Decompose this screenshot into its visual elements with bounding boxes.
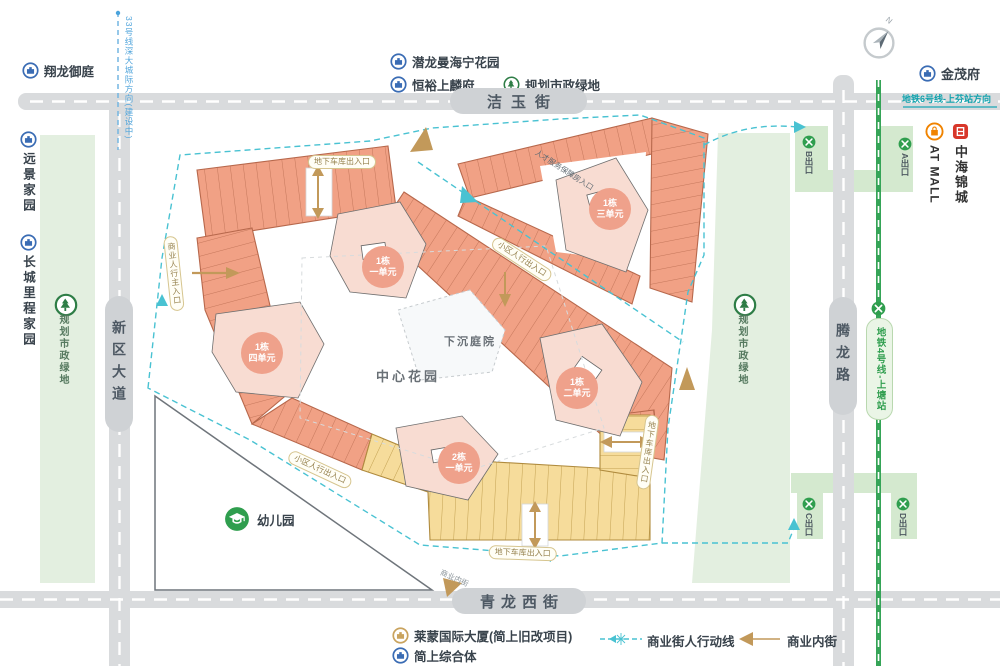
unit-name: 1栋 — [255, 342, 269, 353]
building-icon — [390, 76, 407, 93]
unit-name: 2栋 — [452, 452, 466, 463]
neighbor-changcheng: 长城里程家园 — [19, 234, 38, 348]
legend-inner-street-sample — [739, 632, 780, 646]
unit-badge-1-1: 1栋 一单元 — [362, 246, 404, 288]
street-xinqu-label: 新区大道 — [109, 320, 129, 408]
unit-number: 一单元 — [445, 463, 472, 474]
building-icon — [20, 131, 37, 148]
exit-d-label: D出口 — [897, 513, 909, 536]
unit-number: 一单元 — [369, 267, 396, 278]
building-icon — [392, 647, 409, 664]
exit-a-label: A出口 — [899, 153, 911, 176]
metro-exit-icon — [802, 497, 816, 511]
unit-badge-2-1: 2栋 一单元 — [438, 442, 480, 484]
graduation-cap-icon — [224, 506, 250, 532]
green-right-label: 规划市政绿地 — [733, 293, 750, 386]
metro-exit-c: C出口 — [802, 497, 816, 536]
metro-exit-a: A出口 — [898, 137, 912, 176]
line4-station-label: 地铁4号线-上塘站 — [873, 327, 887, 411]
metro-exit-b: B出口 — [802, 135, 816, 174]
legend-jianshang: 简上综合体 — [392, 646, 477, 665]
zhonghai-brand: 中海锦城 — [951, 122, 970, 205]
kindergarten-text: 幼儿园 — [257, 510, 295, 529]
kindergarten-label: 幼儿园 — [224, 506, 295, 532]
neighbor-changcheng-label: 长城里程家园 — [19, 255, 38, 348]
unit-name: 1栋 — [376, 256, 390, 267]
neighbor-jinmao: 金茂府 — [919, 64, 980, 83]
north-arrow-icon — [856, 20, 902, 66]
street-tenglong: 腾龙路 — [829, 297, 857, 415]
green-left-label: 规划市政绿地 — [54, 293, 71, 386]
zhonghai-logo-icon — [951, 122, 970, 141]
neighbor-qianlong-label: 潜龙曼海宁花园 — [412, 52, 500, 71]
legend-inner-street: 商业内街 — [787, 631, 837, 650]
street-qinglongxi-label: 青龙西街 — [480, 591, 564, 612]
exit-c-label: C出口 — [803, 513, 815, 536]
at-mall-label: AT MALL — [925, 122, 944, 204]
metro-line33-node — [116, 11, 120, 15]
unit-name: 1栋 — [570, 377, 584, 388]
entrance-garage-bottom: 地下车库出入口 — [489, 545, 557, 561]
metro-exit-d: D出口 — [896, 497, 910, 536]
entrance-garage-top: 地下车库出入口 — [308, 155, 376, 169]
legend-pedestrian-sample — [600, 633, 642, 645]
building-icon-gold — [392, 627, 409, 644]
building-icon — [390, 53, 407, 70]
tree-icon — [733, 293, 750, 310]
neighbor-jinmao-label: 金茂府 — [941, 64, 980, 83]
neighbor-yuanjing-label: 远景家园 — [19, 152, 38, 214]
metro-exit-icon — [898, 137, 912, 151]
shopping-bag-icon — [925, 122, 944, 141]
line6-direction-label: 地铁6号线-上芬站方向 — [902, 92, 991, 105]
line4-station-capsule: 地铁4号线-上塘站 — [866, 318, 893, 420]
legend-laimeng: 莱蒙国际大厦(简上旧改项目) — [392, 626, 572, 645]
building-icon — [22, 62, 39, 79]
green-right-text: 规划市政绿地 — [734, 314, 749, 386]
street-xinqu: 新区大道 — [105, 296, 133, 432]
central-garden-label: 中心花园 — [376, 366, 440, 385]
tree-icon — [54, 293, 71, 310]
legend-laimeng-label: 莱蒙国际大厦(简上旧改项目) — [414, 626, 572, 645]
building-icon — [919, 65, 936, 82]
neighbor-xianglong-label: 翔龙御庭 — [44, 61, 94, 80]
zhonghai-text: 中海锦城 — [951, 145, 970, 205]
unit-badge-1-3: 1栋 三单元 — [589, 188, 631, 230]
sunken-courtyard-label: 下沉庭院 — [444, 333, 496, 349]
exit-b-label: B出口 — [803, 151, 815, 174]
neighbor-qianlong: 潜龙曼海宁花园 — [390, 52, 500, 71]
legend-pedestrian-line: 商业街人行动线 — [647, 631, 735, 650]
metro-line4-icon — [871, 301, 886, 316]
metro-exit-icon — [896, 497, 910, 511]
unit-number: 四单元 — [248, 353, 275, 364]
unit-badge-1-4: 1栋 四单元 — [241, 332, 283, 374]
at-mall-text: AT MALL — [928, 145, 942, 204]
legend-pedestrian-label: 商业街人行动线 — [647, 631, 735, 650]
compass — [856, 20, 902, 66]
street-jieyu-label: 洁玉街 — [487, 91, 559, 112]
neighbor-yuanjing: 远景家园 — [19, 131, 38, 214]
legend-inner-street-label: 商业内街 — [787, 631, 837, 650]
street-tenglong-label: 腾龙路 — [833, 323, 853, 389]
unit-number: 三单元 — [596, 209, 623, 220]
line33-label: 33号线深大城际方向(建设中) — [123, 16, 135, 140]
street-qinglongxi: 青龙西街 — [452, 588, 586, 614]
unit-badge-1-2: 1栋 二单元 — [556, 367, 598, 409]
neighbor-xianglong: 翔龙御庭 — [22, 61, 94, 80]
street-jieyu: 洁玉街 — [450, 88, 587, 114]
building-icon — [20, 234, 37, 251]
unit-number: 二单元 — [563, 388, 590, 399]
unit-name: 1栋 — [603, 198, 617, 209]
legend-jianshang-label: 简上综合体 — [414, 646, 477, 665]
site-plan-map: 翔龙御庭 远景家园 长城里程家园 规划市政绿地 33号线深大城际方向(建设中) … — [0, 0, 1000, 666]
green-left-text: 规划市政绿地 — [55, 314, 70, 386]
metro-exit-icon — [802, 135, 816, 149]
